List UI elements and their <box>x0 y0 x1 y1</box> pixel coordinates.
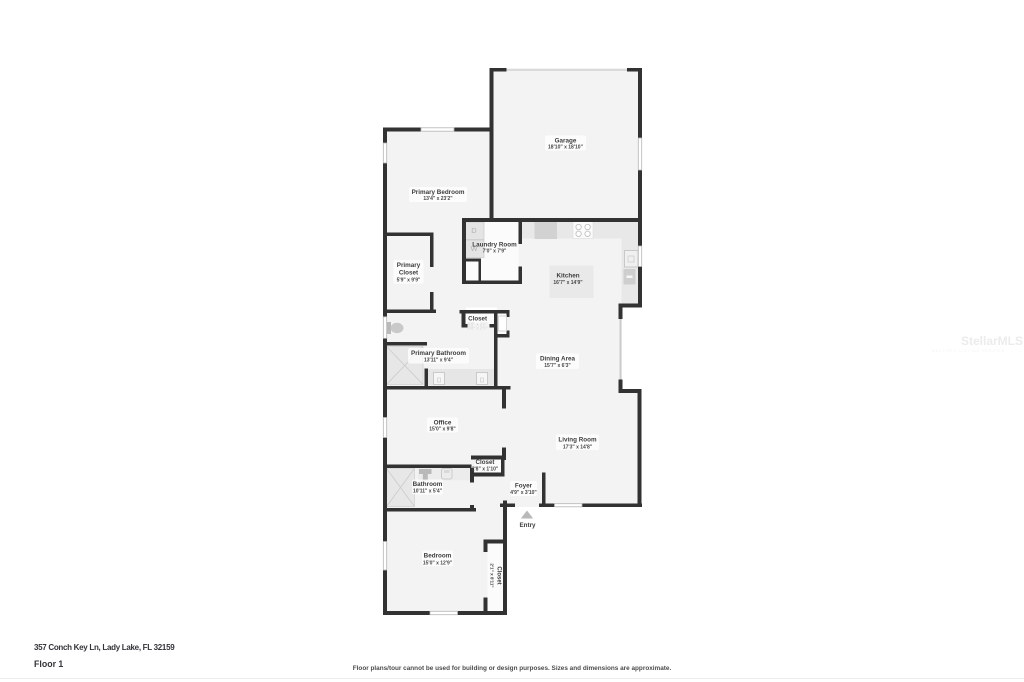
svg-text:Floor 1: Floor 1 <box>34 659 63 669</box>
svg-text:Laundry Room: Laundry Room <box>472 241 517 248</box>
svg-text:D: D <box>471 226 477 235</box>
svg-text:Primary Bedroom: Primary Bedroom <box>412 189 465 196</box>
svg-text:4'9" x 3'10": 4'9" x 3'10" <box>510 490 537 496</box>
svg-text:5'9" x 9'9": 5'9" x 9'9" <box>397 278 421 284</box>
svg-text:Foyer: Foyer <box>515 483 533 490</box>
svg-text:17'3" x 14'8": 17'3" x 14'8" <box>563 444 593 450</box>
svg-text:13'4" x 23'2": 13'4" x 23'2" <box>423 196 453 202</box>
svg-text:16'7" x 14'9": 16'7" x 14'9" <box>553 280 583 286</box>
svg-text:2'8" x 1'10": 2'8" x 1'10" <box>472 467 499 473</box>
svg-text:7'0" x 7'9": 7'0" x 7'9" <box>483 249 507 255</box>
svg-text:18'10" x 18'10": 18'10" x 18'10" <box>548 145 584 151</box>
svg-text:Bedroom: Bedroom <box>424 552 452 559</box>
svg-text:Kitchen: Kitchen <box>556 273 579 280</box>
svg-text:5'8" x 2'0": 5'8" x 2'0" <box>468 325 488 330</box>
svg-text:357 Conch Key Ln, Lady Lake, F: 357 Conch Key Ln, Lady Lake, FL 32159 <box>34 643 175 652</box>
svg-text:Primary Bathroom: Primary Bathroom <box>411 350 466 357</box>
svg-text:Closet: Closet <box>399 270 419 277</box>
svg-text:Entry: Entry <box>519 522 536 529</box>
svg-text:Living Room: Living Room <box>558 436 597 443</box>
svg-text:Closet: Closet <box>476 459 495 466</box>
svg-text:MULTIPLE LISTING SERVICE: MULTIPLE LISTING SERVICE <box>932 349 1005 353</box>
svg-text:Garage: Garage <box>555 138 577 145</box>
svg-text:Closet: Closet <box>496 566 502 584</box>
svg-text:Floor plans/tour cannot be use: Floor plans/tour cannot be used for buil… <box>353 665 672 672</box>
svg-text:15'0" x 12'9": 15'0" x 12'9" <box>423 560 453 566</box>
svg-text:2'1" x 8'11": 2'1" x 8'11" <box>490 563 495 587</box>
svg-text:15'0" x 9'8": 15'0" x 9'8" <box>429 427 456 433</box>
svg-text:10'11" x 5'4": 10'11" x 5'4" <box>413 489 443 495</box>
svg-text:15'7" x 6'3": 15'7" x 6'3" <box>544 363 571 369</box>
svg-text:StellarMLS: StellarMLS <box>961 334 1023 348</box>
svg-text:Bathroom: Bathroom <box>413 481 443 488</box>
svg-text:Primary: Primary <box>397 262 421 269</box>
svg-text:13'11" x 9'4": 13'11" x 9'4" <box>424 357 454 363</box>
svg-text:Dining Area: Dining Area <box>540 356 576 363</box>
svg-text:Office: Office <box>434 419 452 426</box>
